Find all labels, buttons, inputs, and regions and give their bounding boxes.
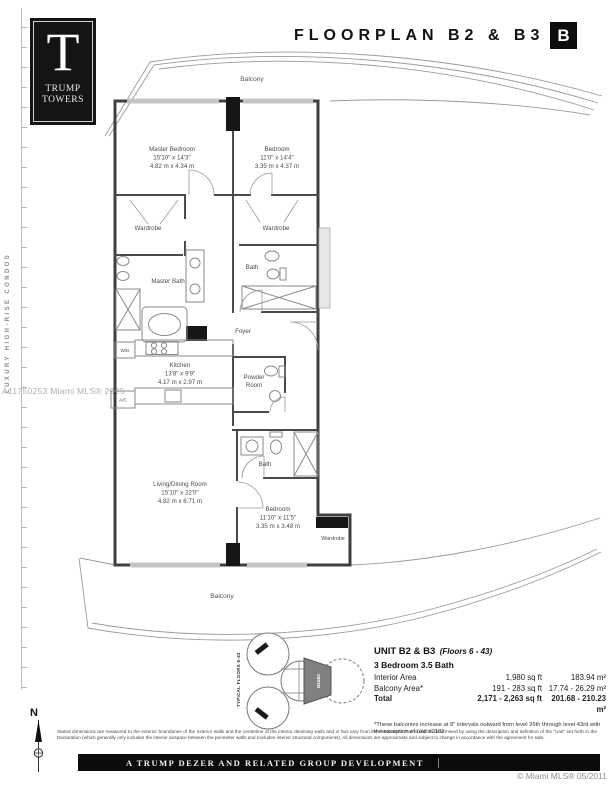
toilet-icon (270, 432, 282, 437)
service-shaft (319, 228, 330, 308)
ac-label: A/C (119, 398, 127, 403)
area-label: Interior Area (374, 673, 452, 684)
area-sqft: 1,980 sq ft (452, 673, 542, 684)
sink-icon (246, 440, 258, 452)
toilet-icon (280, 268, 286, 280)
area-sqm: 201.68 - 210.23 m² (542, 694, 606, 715)
bedroom-top-dims-ft: 11'0" x 14'4" (260, 155, 293, 162)
island-icon (135, 388, 233, 404)
balcony-top-label: Balcony (240, 76, 264, 83)
area-label: Balcony Area* (374, 684, 452, 695)
north-arrow-icon: N (30, 707, 43, 772)
keyplan-unit-label: B2&B3 (316, 673, 321, 687)
area-label: Total (374, 694, 452, 715)
area-sqft: 2,171 - 2,263 sq ft (452, 694, 542, 715)
area-sqm: 17.74 - 26.29 m² (542, 684, 606, 695)
bedroom-bottom-dims-m: 3.35 m x 3.48 m (256, 523, 300, 530)
area-sqm: 183.94 m² (542, 673, 606, 684)
sink-icon (270, 391, 281, 402)
floorplan-page: LUXURY HIGH-RISE CONDOS A11750253 Miami … (0, 0, 612, 792)
master-bedroom-dims-ft: 15'10" x 14'3" (153, 155, 190, 162)
sink-icon (117, 257, 129, 266)
room-labels: Master Bedroom 15'10" x 14'3" 4.82 m x 4… (119, 146, 345, 542)
development-bar: A TRUMP DEZER AND RELATED GROUP DEVELOPM… (78, 754, 600, 771)
development-bar-text: A TRUMP DEZER AND RELATED GROUP DEVELOPM… (126, 758, 424, 768)
keyplan-side-label: TYPICAL FLOORS 6-43 (236, 652, 241, 707)
bath-top-label: Bath (246, 264, 259, 271)
kitchen-dims-ft: 13'8" x 9'9" (165, 371, 196, 378)
bedroom-top-dims-m: 3.35 m x 4.37 m (255, 163, 299, 170)
wardrobe-bottom-label: Wardrobe (321, 536, 344, 542)
area-sqft: 191 - 283 sq ft (452, 684, 542, 695)
balcony-top: Balcony (105, 52, 602, 136)
unit-floors: (Floors 6 - 43) (440, 647, 492, 656)
bedroom-bottom-label: Bedroom (265, 506, 290, 513)
foyer-label: Foyer (235, 328, 251, 335)
mls-copyright: © Miami MLS® 05/2011 (517, 771, 607, 781)
table-row: Balcony Area* 191 - 283 sq ft 17.74 - 26… (374, 684, 606, 695)
powder-room-label-1: Powder (244, 374, 265, 381)
wardrobe-master-label: Wardrobe (135, 225, 162, 232)
table-row-total: Total 2,171 - 2,263 sq ft 201.68 - 210.2… (374, 694, 606, 715)
legal-disclaimer: Stated dimensions are measured to the ex… (57, 729, 597, 740)
living-dining-dims-ft: 15'10" x 22'0" (161, 490, 198, 497)
powder-room-label-2: Room (246, 382, 263, 389)
powder-room-fixtures (265, 366, 286, 402)
bath-top-fixtures (242, 251, 316, 309)
master-bedroom-label: Master Bedroom (149, 146, 195, 153)
kitchen-label: Kitchen (170, 362, 191, 369)
bedroom-top-label: Bedroom (264, 146, 289, 153)
bedroom-bottom-dims-ft: 11'10" x 11'5" (260, 515, 296, 522)
interior-walls (115, 101, 318, 565)
door-arcs (130, 170, 318, 508)
wd-label: W/D (121, 348, 131, 353)
unit-summary: UNIT B2 & B3 (Floors 6 - 43) 3 Bedroom 3… (374, 641, 606, 736)
toilet-icon (117, 272, 129, 281)
area-table: Interior Area 1,980 sq ft 183.94 m² Balc… (374, 673, 606, 715)
bath-bottom-fixtures (241, 432, 318, 476)
unit-subtitle: 3 Bedroom 3.5 Bath (374, 660, 606, 670)
kitchen-dims-m: 4.17 m x 2.97 m (158, 379, 202, 386)
living-dining-label: Living/Dining Room (153, 481, 207, 488)
divider (438, 758, 439, 768)
balcony-bottom-label: Balcony (210, 593, 234, 600)
table-row: Interior Area 1,980 sq ft 183.94 m² (374, 673, 606, 684)
keyplan: TYPICAL FLOORS 6-43 B2&B3 (236, 633, 364, 729)
bath-bottom-label: Bath (259, 461, 272, 468)
sink-icon (265, 251, 279, 261)
master-bath-label: Master Bath (151, 278, 185, 285)
unit-title: UNIT B2 & B3 (374, 646, 435, 657)
living-dining-dims-m: 4.82 m x 6.71 m (158, 498, 202, 505)
kitchen-sink-icon (165, 390, 181, 402)
master-bedroom-dims-m: 4.82 m x 4.34 m (150, 163, 194, 170)
wardrobe-top-label: Wardrobe (263, 225, 290, 232)
north-label: N (30, 707, 38, 719)
